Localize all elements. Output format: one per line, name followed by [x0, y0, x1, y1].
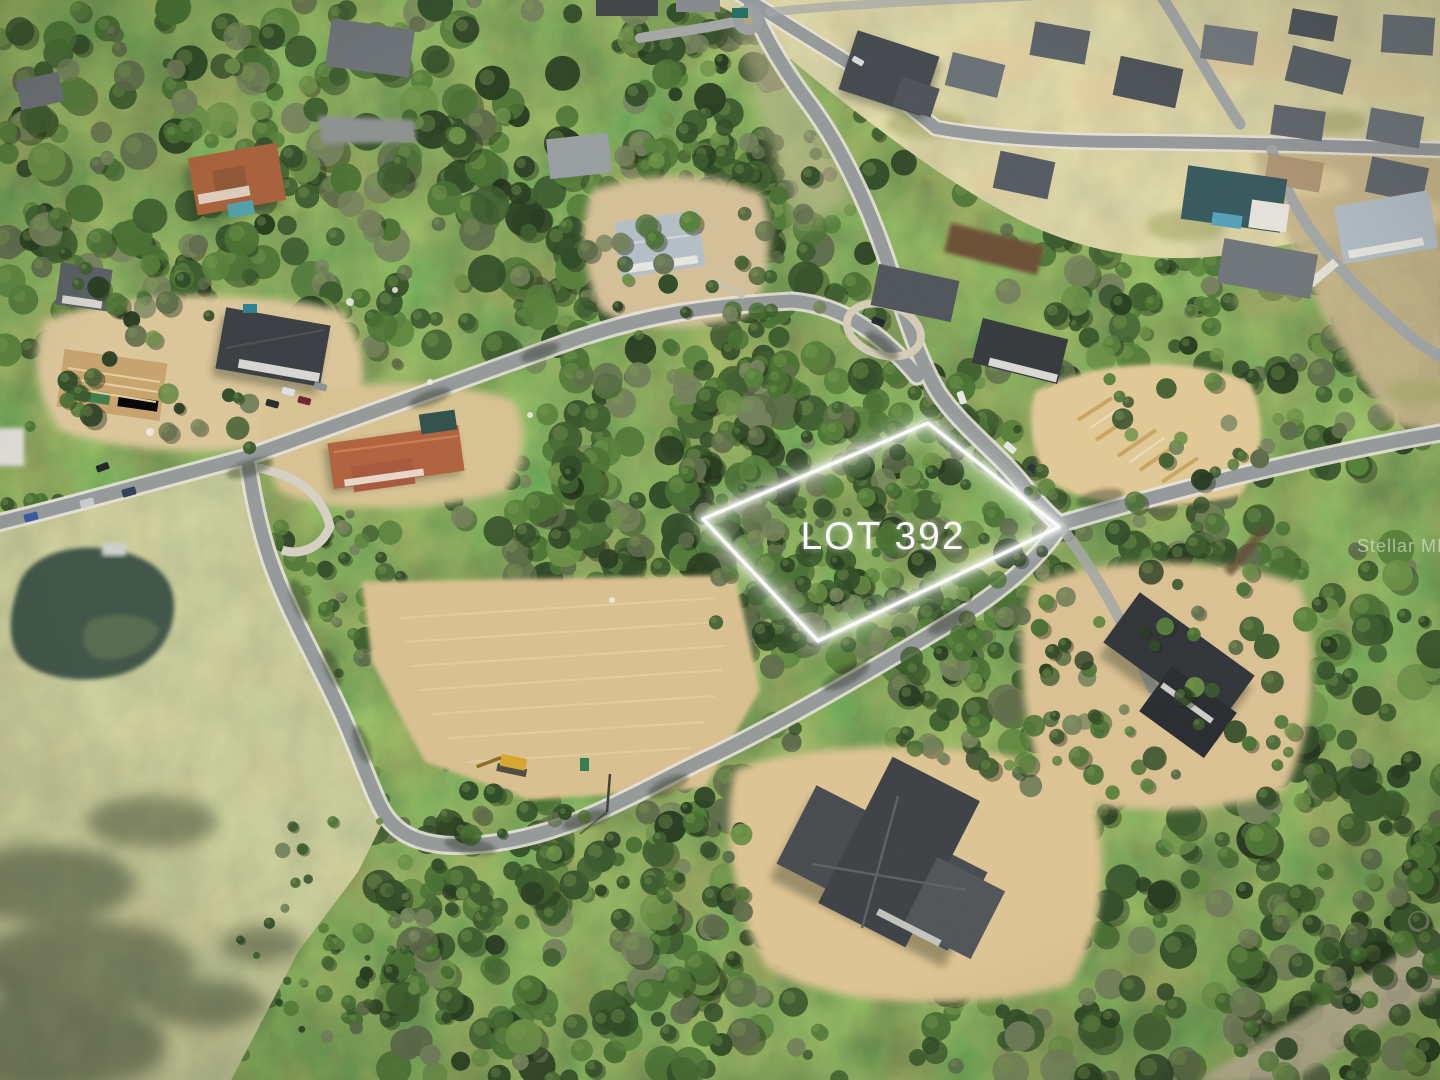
aerial-photo: LOT 392 Stellar MLS: [0, 0, 1440, 1080]
vignette: [0, 0, 1440, 1080]
aerial-scene: LOT 392 Stellar MLS: [0, 0, 1440, 1080]
